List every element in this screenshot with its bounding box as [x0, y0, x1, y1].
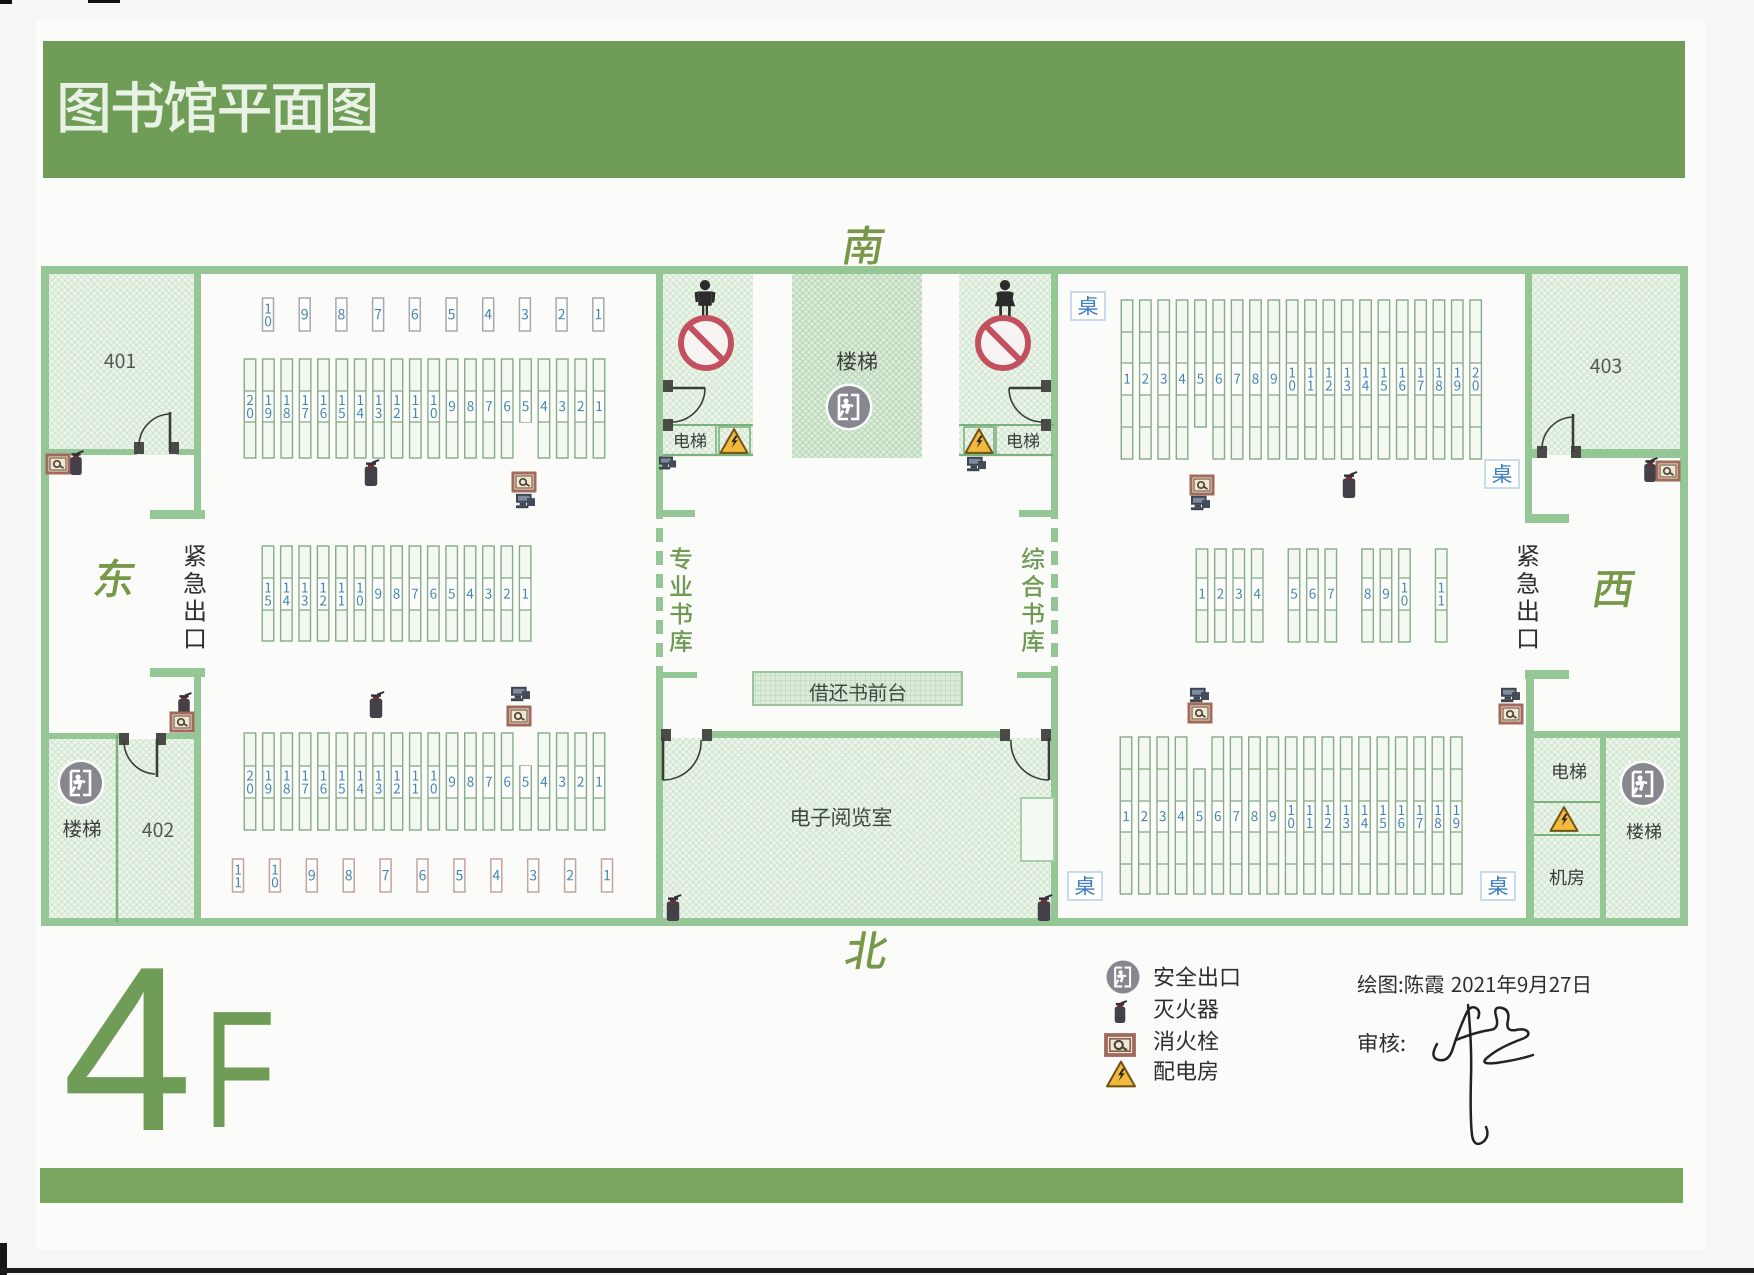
svg-text:4: 4 [62, 917, 193, 1180]
svg-text:F: F [204, 976, 275, 1163]
